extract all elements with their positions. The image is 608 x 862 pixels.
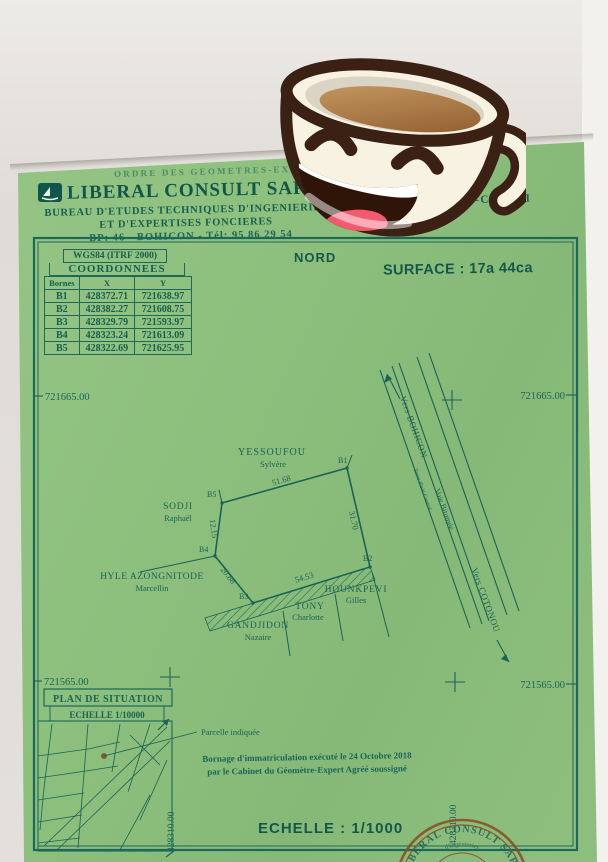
main-scale-label: ECHELLE : 1/1000 xyxy=(258,820,458,837)
happy-coffee-cup-sticker xyxy=(250,22,526,266)
road-group: Vers BOHICON Terre Plein Central Voie Bi… xyxy=(380,353,519,662)
neighbor-south1-given: Nazaire xyxy=(245,632,272,642)
neighbor-west-surname: SODJI xyxy=(163,502,193,512)
situation-scale: ECHELLE 1/10000 xyxy=(69,710,145,720)
neighbor-southwest-given: Marcellin xyxy=(135,583,169,593)
corner-b5: B5 xyxy=(207,490,216,499)
edge-measurements: 51.68 31.70 54.53 20.88 12.15 xyxy=(208,473,361,586)
edge-20-88: 20.88 xyxy=(218,565,238,586)
edge-54-53: 54.53 xyxy=(294,570,315,585)
neighbor-south2-surname: TONY xyxy=(295,602,324,612)
corner-b4: B4 xyxy=(199,545,208,554)
neighbor-south3-surname: HOUNKPEVI xyxy=(325,585,388,595)
neighbor-west-given: Raphaël xyxy=(164,513,192,523)
corner-b1: B1 xyxy=(338,456,347,465)
parcel-group: B1 B2 B3 B4 B5 51.68 31.70 54.53 20.88 1… xyxy=(100,447,389,656)
situation-title: PLAN DE SITUATION xyxy=(53,694,163,705)
grid-label-y-top-left: 721665.00 xyxy=(45,392,90,403)
cotonou-arrowhead-icon xyxy=(501,654,509,662)
edge-31-70: 31.70 xyxy=(347,510,361,531)
grid-label-y-top-right: 721665.00 xyxy=(520,391,565,402)
road-to-cotonou-label: Vers COTONOU xyxy=(469,566,502,633)
neighbor-south3-given: Gilles xyxy=(346,595,366,605)
neighbor-southwest-surname: HYLE AZONGNITODE xyxy=(100,572,204,582)
corner-b3: B3 xyxy=(239,592,248,601)
neighbor-north-given: Sylvère xyxy=(260,459,286,469)
grid-label-y-bottom-left: 721565.00 xyxy=(44,677,89,688)
neighbor-south1-surname: GANDJIDON xyxy=(227,621,289,631)
road-paved-label: Voie Bitumée xyxy=(433,487,457,531)
edge-12-15: 12.15 xyxy=(208,518,221,538)
coffee-cup-group xyxy=(269,54,526,265)
grid-label-y-bottom-right: 721565.00 xyxy=(520,680,565,691)
neighbor-south2-given: Charlotte xyxy=(292,612,324,622)
situation-street-grid xyxy=(38,724,170,851)
edge-51-68: 51.68 xyxy=(271,473,292,488)
corner-b2: B2 xyxy=(363,554,372,563)
situation-callout: Parcelle indiquée xyxy=(201,727,260,737)
photo-of-survey-document: ORDRE DES GEOMETRES-EXPERTS LIBERAL CONS… xyxy=(0,0,608,862)
neighbor-north-surname: YESSOUFOU xyxy=(238,447,306,458)
